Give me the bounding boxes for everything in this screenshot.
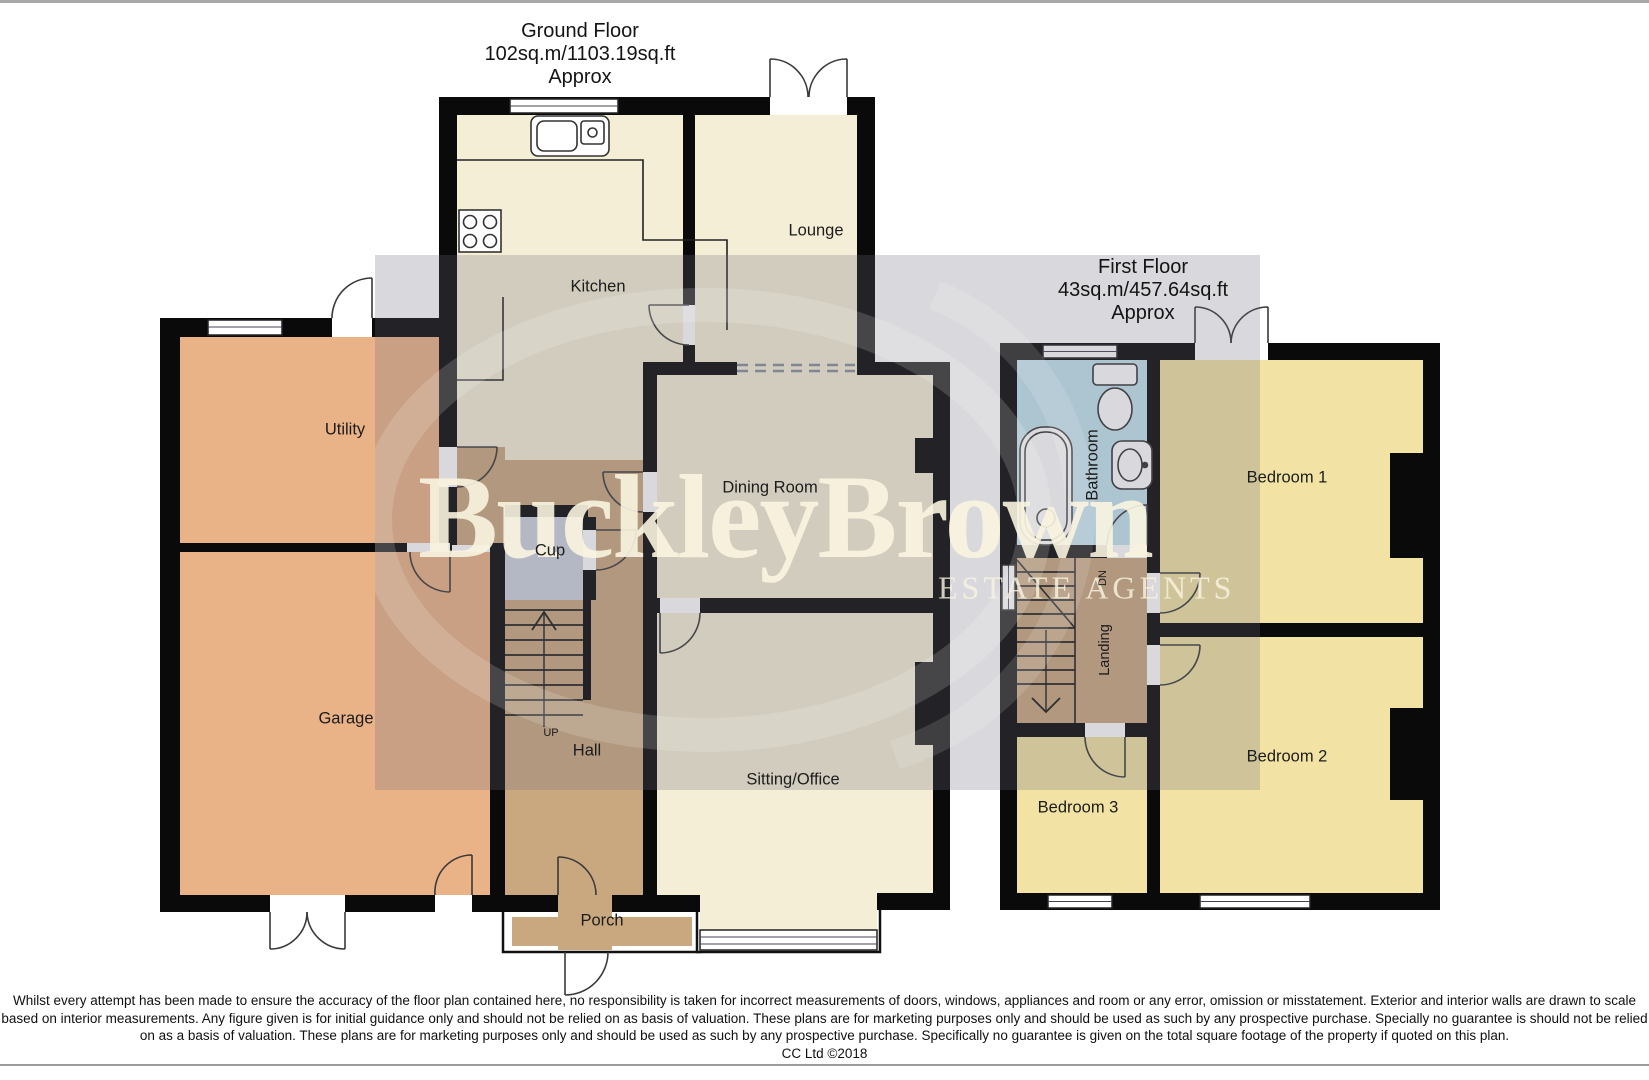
first-floor-title: First Floor: [1058, 256, 1228, 279]
ground-floor-approx: Approx: [485, 66, 676, 89]
chimney-breast-bed2: [1390, 708, 1423, 800]
first-floor-header: First Floor 43sq.m/457.64sq.ft Approx: [1058, 256, 1228, 325]
disclaimer: Whilst every attempt has been made to en…: [0, 992, 1649, 1062]
lounge-label: Lounge: [788, 222, 843, 241]
bay-window: [700, 930, 877, 950]
bedroom2-label: Bedroom 2: [1247, 748, 1328, 767]
stairs-side-window: [1002, 565, 1015, 610]
up-label: UP: [543, 727, 558, 739]
utility-floor: [180, 337, 439, 543]
copyright-line: CC Ltd ©2018: [0, 1045, 1649, 1063]
disclaimer-line-3: on as a basis of valuation. These plans …: [0, 1027, 1649, 1045]
bathroom-label: Bathroom: [1084, 429, 1103, 501]
bedroom2-window: [1200, 895, 1310, 908]
garage-double-doors: [270, 912, 345, 949]
landing-label: Landing: [1097, 624, 1113, 676]
dining-room-label: Dining Room: [722, 479, 817, 498]
chimney-breast-sitting: [915, 662, 933, 745]
utility-label: Utility: [325, 421, 365, 440]
lounge-floor: [695, 115, 857, 367]
ground-floor-area: 102sq.m/1103.19sq.ft: [485, 43, 676, 66]
bedroom1-label: Bedroom 1: [1247, 469, 1328, 488]
utility-window: [208, 320, 282, 335]
first-floor-area: 43sq.m/457.64sq.ft: [1058, 279, 1228, 302]
floor-plan-drawing: [0, 0, 1649, 1080]
ground-floor-title: Ground Floor: [485, 20, 676, 43]
first-floor-approx: Approx: [1058, 302, 1228, 325]
kitchen-hob: [459, 210, 501, 252]
bathroom-window: [1043, 345, 1117, 358]
sitting-office-label: Sitting/Office: [746, 771, 839, 790]
floorplan-page: BuckleyBrown ESTATE AGENTS Ground Floor …: [0, 0, 1649, 1080]
wash-basin: [1112, 441, 1152, 489]
first-floor-plan: [1000, 307, 1440, 910]
bath-tub: [1020, 427, 1072, 545]
hall-floor-west: [457, 447, 505, 545]
ground-floor-plan: [160, 59, 950, 995]
dn-label: DN: [1097, 570, 1109, 586]
chimney-breast-bed1: [1390, 453, 1423, 558]
disclaimer-line-2: based on interior measurements. Any figu…: [0, 1010, 1649, 1028]
utility-back-door: [332, 278, 372, 318]
lounge-french-doors: [770, 59, 847, 97]
chimney-breast-dining: [915, 438, 933, 473]
bottom-border-line: [0, 1064, 1649, 1066]
cup-label: Cup: [535, 542, 565, 561]
sitting-floor: [657, 613, 933, 895]
bay-floor: [700, 895, 877, 932]
ground-floor-header: Ground Floor 102sq.m/1103.19sq.ft Approx: [485, 20, 676, 89]
disclaimer-line-1: Whilst every attempt has been made to en…: [0, 992, 1649, 1010]
kitchen-window: [510, 99, 618, 113]
hall-label: Hall: [573, 742, 601, 761]
bedroom3-window: [1048, 895, 1112, 908]
kitchen-label: Kitchen: [570, 278, 625, 297]
garage-label: Garage: [318, 710, 373, 729]
porch-label: Porch: [580, 912, 623, 931]
kitchen-sink: [531, 116, 609, 156]
bedroom3-label: Bedroom 3: [1038, 799, 1119, 818]
front-door: [565, 952, 608, 995]
